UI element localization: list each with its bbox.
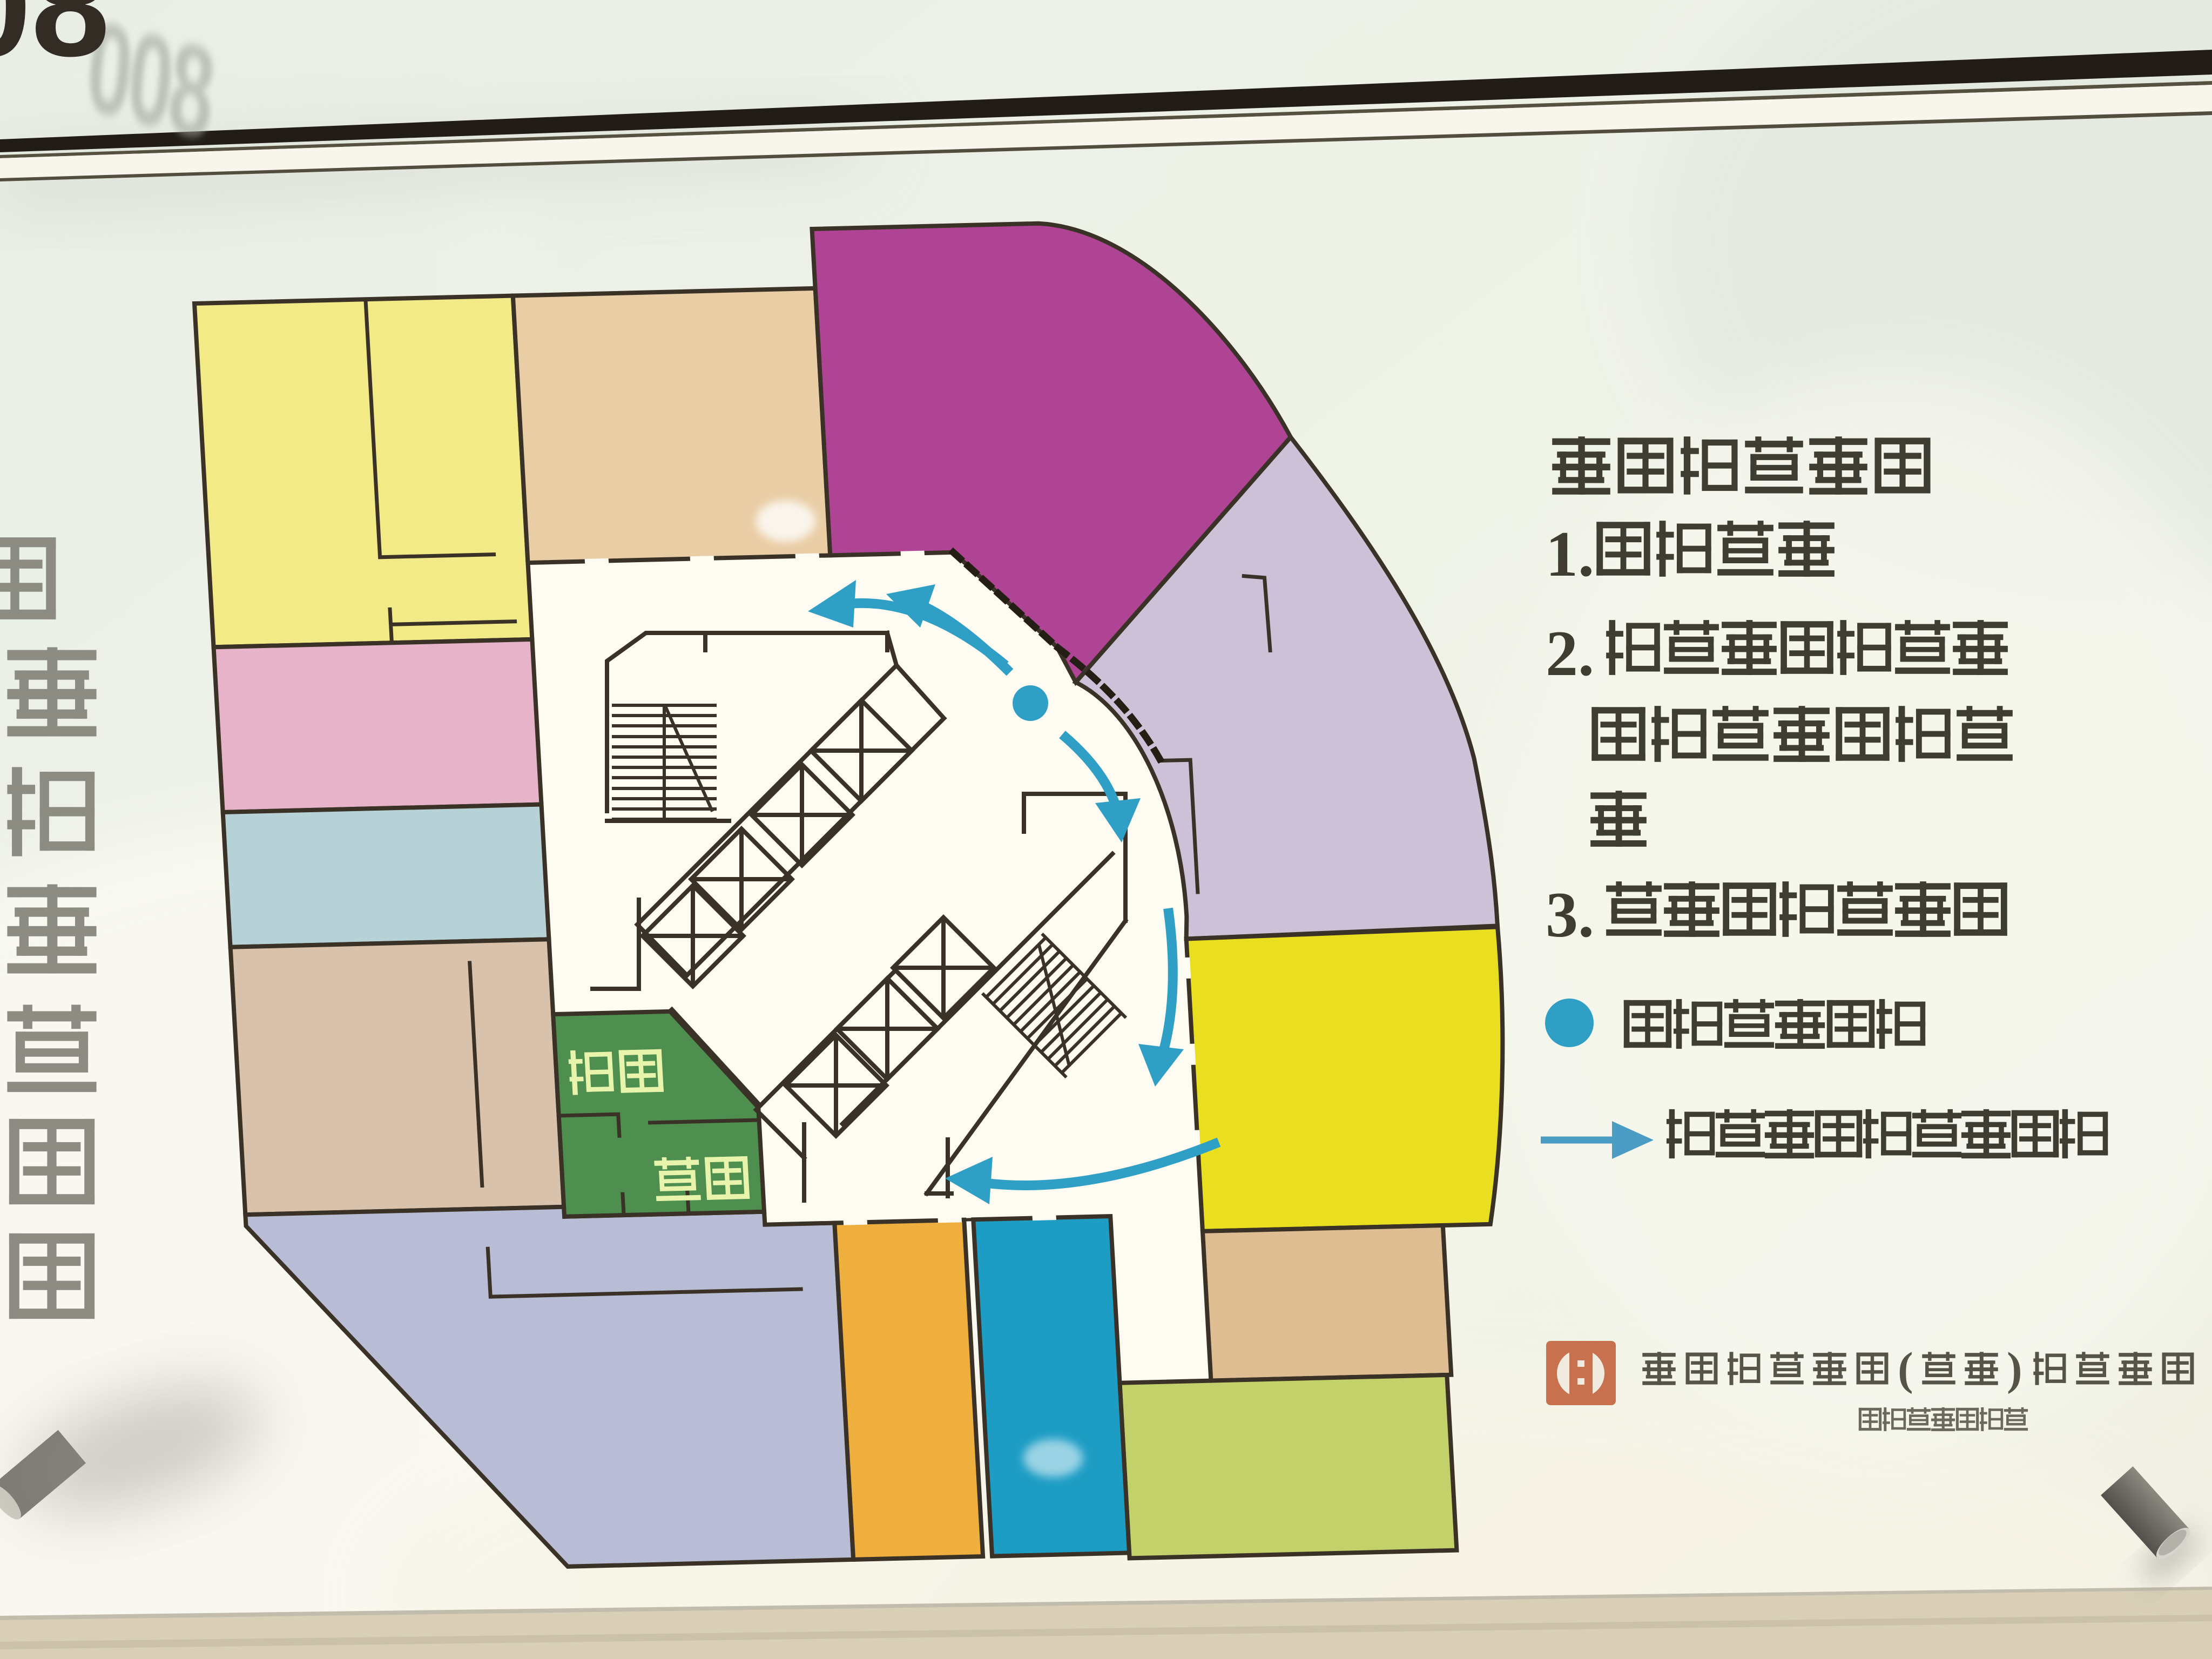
svg-text:): )	[2007, 1343, 2022, 1394]
svg-text:(: (	[1898, 1343, 1913, 1394]
svg-text:2.: 2.	[1546, 617, 1594, 689]
svg-text:1.: 1.	[1546, 518, 1594, 590]
svg-text:3.: 3.	[1546, 879, 1594, 950]
svg-text:08: 08	[0, 0, 110, 86]
